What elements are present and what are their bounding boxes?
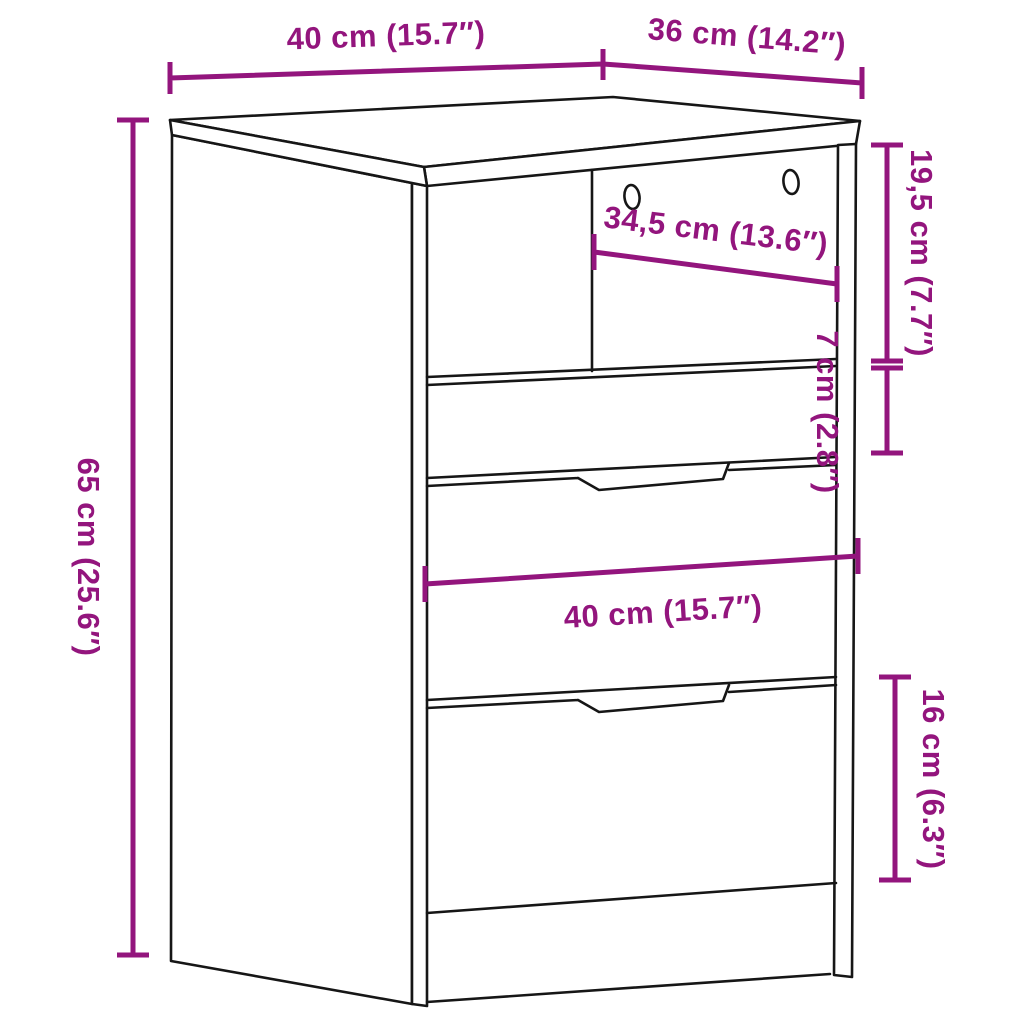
label-overall-height: 65 cm (25.6″) [70,458,106,657]
drawer3-bottom-edge [427,883,836,913]
dim-top-width [170,49,603,94]
label-bottom-drawer-height: 16 cm (6.3″) [915,688,951,869]
dim-bottom-drawer-height [879,677,911,880]
screw-hole [782,169,800,195]
dimension-diagram: 40 cm (15.7″) 36 cm (14.2″) 34,5 cm (13.… [0,0,1024,1024]
dim-overall-height [117,120,149,955]
left-side-panel [171,135,412,1004]
dim-top-depth [603,64,862,99]
shelf-edge [427,359,836,385]
label-top-drawer-height: 7 cm (2.8″) [809,330,845,493]
dim-compartment-height [871,145,903,361]
label-compartment-height: 19,5 cm (7.7″) [903,149,939,357]
plinth-bottom-edge [427,974,830,1002]
line-art [0,0,1024,1024]
label-top-width: 40 cm (15.7″) [286,15,486,58]
dim-drawer-width [425,538,858,602]
dim-top-drawer-height [871,368,903,453]
